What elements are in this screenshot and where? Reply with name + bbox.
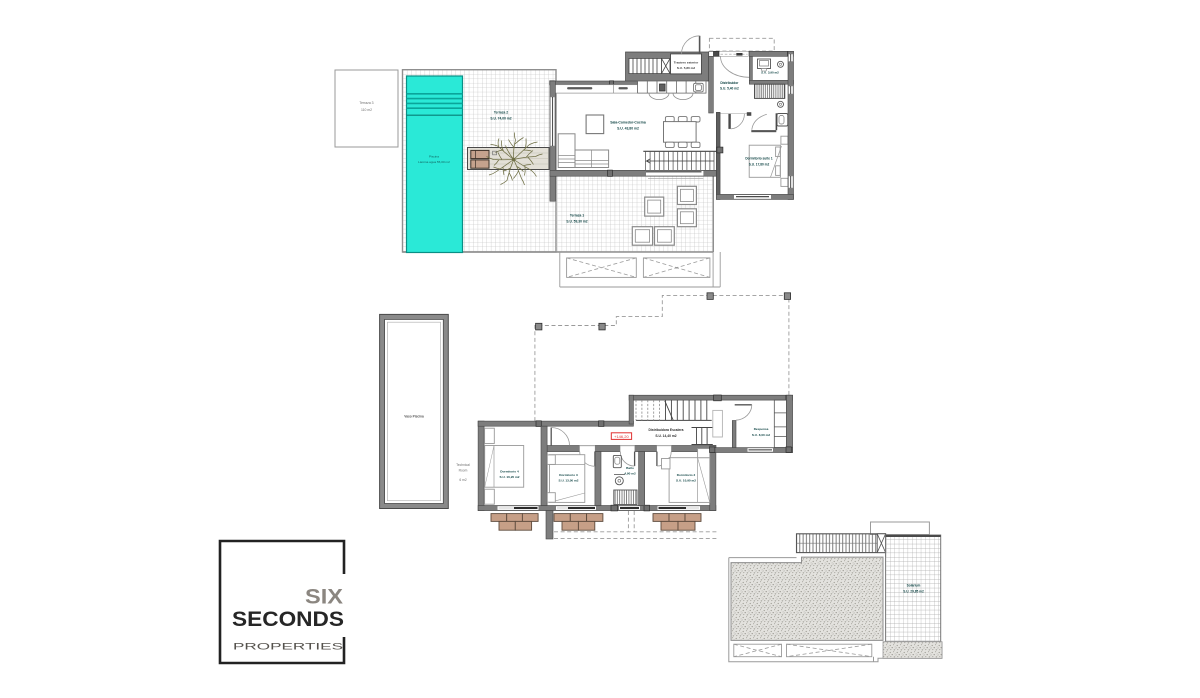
- svg-text:S.U. 29,85 m2: S.U. 29,85 m2: [903, 590, 924, 594]
- svg-text:Dormitorio 2: Dormitorio 2: [677, 473, 696, 477]
- svg-text:Terraza 3: Terraza 3: [359, 101, 373, 105]
- svg-text:S.U. 5,80 m2: S.U. 5,80 m2: [677, 66, 696, 70]
- svg-text:S.U. 5,40 m2: S.U. 5,40 m2: [720, 87, 739, 91]
- svg-text:S.U. 17,80 m2: S.U. 17,80 m2: [749, 163, 770, 167]
- svg-text:SECONDS: SECONDS: [232, 607, 344, 631]
- svg-text:Dormitorio 4: Dormitorio 4: [500, 470, 519, 474]
- svg-text:S.U. 14,40 m2: S.U. 14,40 m2: [655, 434, 676, 438]
- svg-text:Trastero exterior: Trastero exterior: [674, 61, 699, 65]
- svg-text:S.U. 16,20 m2: S.U. 16,20 m2: [500, 475, 520, 479]
- svg-text:Technical: Technical: [456, 463, 470, 467]
- svg-text:S.U. 43,80 m2: S.U. 43,80 m2: [617, 127, 639, 131]
- svg-text:Piscina: Piscina: [429, 155, 439, 159]
- svg-text:S.U. 10,90 m2: S.U. 10,90 m2: [676, 479, 696, 483]
- svg-text:S.U. 3,90 m2: S.U. 3,90 m2: [761, 71, 779, 75]
- svg-text:SIX: SIX: [305, 586, 343, 609]
- svg-text:S.U. 74,00 m2: S.U. 74,00 m2: [490, 117, 511, 121]
- svg-text:Room: Room: [459, 469, 468, 473]
- svg-text:Terraza 1: Terraza 1: [570, 214, 584, 218]
- svg-text:Despensa: Despensa: [754, 427, 769, 431]
- svg-text:Baño: Baño: [626, 466, 634, 470]
- svg-text:+146,20: +146,20: [614, 434, 629, 439]
- svg-text:6 m2: 6 m2: [459, 478, 466, 482]
- svg-text:Distribuidor: Distribuidor: [720, 81, 739, 85]
- svg-text:4,90 m2: 4,90 m2: [624, 472, 636, 476]
- svg-text:S.U. 8,00 m2: S.U. 8,00 m2: [752, 433, 771, 437]
- svg-text:Dormitorio 3: Dormitorio 3: [559, 473, 578, 477]
- svg-text:PROPERTIES: PROPERTIES: [233, 642, 343, 653]
- svg-text:110 m2: 110 m2: [361, 108, 372, 112]
- svg-text:Vaso Piscina: Vaso Piscina: [404, 415, 424, 419]
- svg-text:Distribuidora Escalera: Distribuidora Escalera: [649, 428, 684, 432]
- svg-text:S.U. 59,30 m2: S.U. 59,30 m2: [566, 220, 587, 224]
- svg-text:Terraza 2: Terraza 2: [494, 111, 508, 115]
- svg-text:Dormitorio suite 1: Dormitorio suite 1: [745, 157, 773, 161]
- svg-text:Lámina agua 55,00 m2: Lámina agua 55,00 m2: [418, 160, 450, 164]
- svg-text:Solarium: Solarium: [907, 584, 921, 588]
- svg-text:S.U. 13,00 m2: S.U. 13,00 m2: [559, 479, 579, 483]
- svg-text:Sala-Comedor-Cocina: Sala-Comedor-Cocina: [610, 121, 646, 125]
